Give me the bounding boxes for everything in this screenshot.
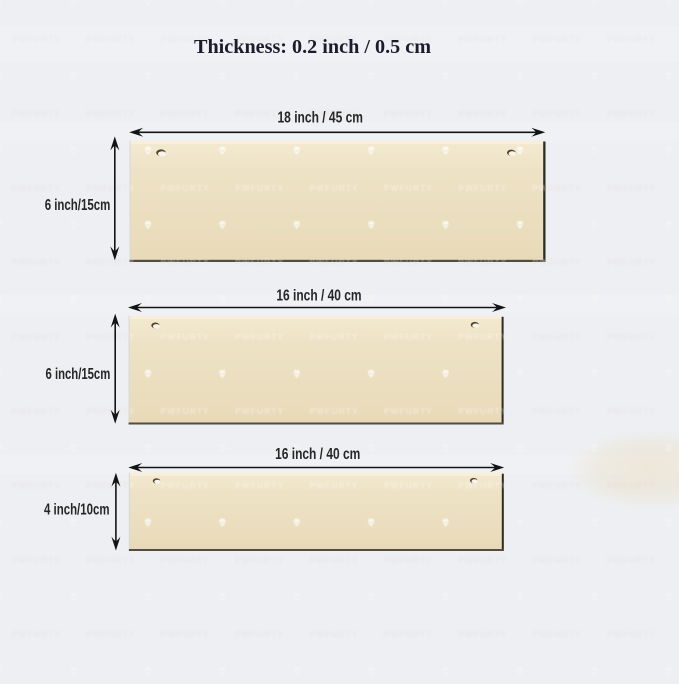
svg-text:6 inch/15cm: 6 inch/15cm [45, 197, 111, 214]
svg-text:16 inch / 40 cm: 16 inch / 40 cm [276, 287, 361, 304]
svg-text:16 inch / 40 cm: 16 inch / 40 cm [275, 446, 360, 463]
svg-text:6 inch/15cm: 6 inch/15cm [46, 366, 111, 383]
svg-text:Thickness: 0.2 inch / 0.5 cm: Thickness: 0.2 inch / 0.5 cm [194, 37, 431, 58]
svg-text:18 inch / 45 cm: 18 inch / 45 cm [278, 109, 364, 126]
svg-text:4 inch/10cm: 4 inch/10cm [44, 502, 110, 519]
